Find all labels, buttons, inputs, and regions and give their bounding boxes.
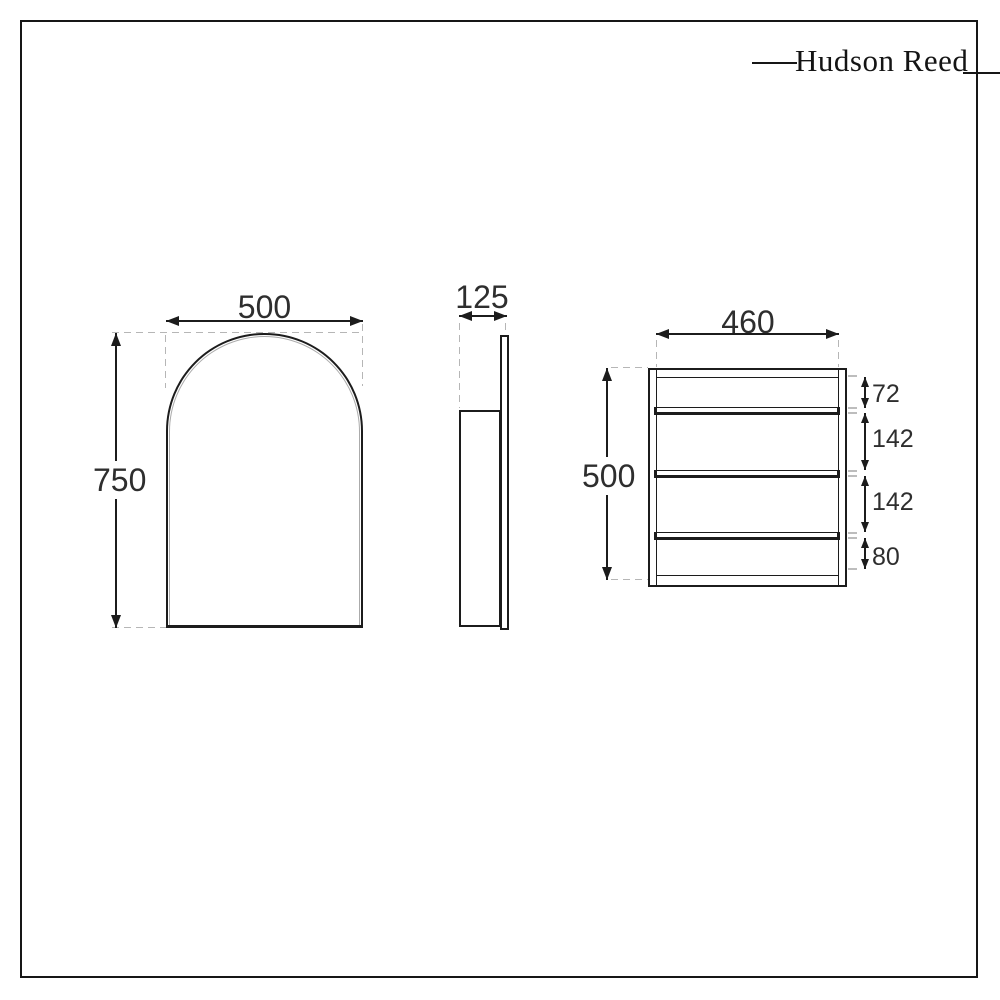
shelf-chain-tick — [848, 407, 857, 409]
front-width-dimension-arrow — [166, 320, 363, 322]
cabinet-side-body — [459, 410, 501, 627]
interior-height-bottom-extension-line — [611, 579, 648, 580]
mirror-front-outline — [166, 333, 363, 628]
interior-width-right-extension-line — [838, 340, 839, 367]
logo-left-rule — [752, 62, 797, 64]
interior-width-left-extension-line — [656, 340, 657, 367]
cabinet-bottom-inner-line — [657, 575, 838, 576]
side-left-extension-line — [459, 323, 460, 408]
logo-right-rule — [963, 72, 1000, 74]
segment-142b-label: 142 — [872, 490, 914, 515]
mirror-inner-edge-line — [169, 336, 360, 625]
segment-80-dimension-arrow — [864, 538, 866, 569]
segment-142b-dimension-arrow — [864, 476, 866, 532]
interior-height-dimension-label: 500 — [579, 457, 638, 495]
front-left-extension-line — [165, 335, 166, 388]
brand-logo: Hudson Reed — [752, 45, 1000, 77]
front-top-extension-line — [112, 332, 363, 333]
shelf-1 — [654, 407, 840, 415]
front-height-dimension-label: 750 — [90, 461, 149, 499]
shelf-chain-tick — [848, 532, 857, 534]
segment-80-label: 80 — [872, 545, 900, 570]
mirror-door-side-panel — [500, 335, 509, 630]
interior-height-top-extension-line — [611, 367, 648, 368]
logo-text: Hudson Reed — [795, 45, 968, 77]
side-depth-dimension-arrow — [459, 315, 507, 317]
shelf-chain-tick — [848, 470, 857, 472]
shelf-3 — [654, 532, 840, 540]
segment-142a-dimension-arrow — [864, 413, 866, 470]
segment-72-label: 72 — [872, 382, 900, 407]
segment-72-dimension-arrow — [864, 377, 866, 408]
shelf-chain-tick — [848, 475, 857, 477]
side-right-extension-line — [505, 323, 506, 334]
cabinet-top-inner-line — [657, 377, 838, 378]
diagram-canvas: Hudson Reed 500 750 125 — [0, 0, 1000, 1000]
front-width-dimension-label: 500 — [166, 291, 363, 323]
interior-width-dimension-arrow — [656, 333, 839, 335]
shelf-chain-tick — [848, 537, 857, 539]
segment-142a-label: 142 — [872, 427, 914, 452]
side-depth-dimension-label: 125 — [452, 281, 512, 313]
shelf-2 — [654, 470, 840, 478]
shelf-chain-tick — [848, 375, 857, 377]
shelf-chain-tick — [848, 412, 857, 414]
front-right-extension-line — [362, 324, 363, 386]
shelf-chain-tick — [848, 568, 857, 570]
